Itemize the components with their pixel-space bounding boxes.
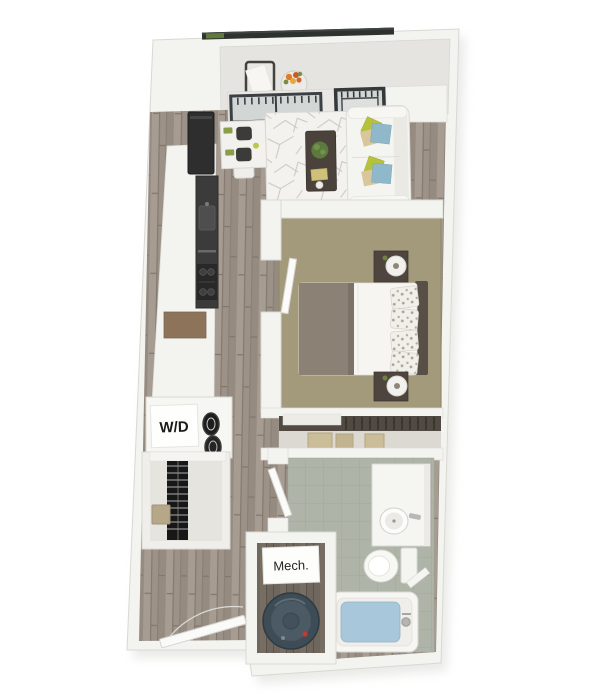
- blanket-edge: [348, 283, 354, 375]
- basket: [365, 434, 384, 448]
- leaf: [284, 80, 289, 85]
- door-muntins: [342, 91, 378, 98]
- leaf: [298, 72, 302, 76]
- bed-pillow: [390, 350, 419, 374]
- mech-label: Mech.: [273, 557, 309, 573]
- burner: [200, 289, 207, 296]
- toilet-seat: [369, 556, 390, 576]
- dish: [316, 182, 323, 189]
- greenery: [383, 256, 388, 261]
- water-heater-cap: [283, 613, 299, 629]
- railing-planter-green: [206, 33, 224, 38]
- flower: [296, 77, 301, 82]
- wd-label: W/D: [159, 418, 189, 436]
- burner: [200, 269, 207, 276]
- refrigerator-handle: [190, 116, 212, 119]
- closet-shelf: [283, 414, 341, 425]
- burner: [208, 269, 215, 276]
- bed-pillow: [390, 330, 419, 352]
- flower: [290, 78, 296, 84]
- burner: [208, 289, 215, 296]
- bed-blanket: [299, 283, 352, 375]
- basket: [308, 433, 332, 448]
- lamp-finial: [394, 383, 400, 389]
- coat-closet: [142, 452, 230, 549]
- greenery: [383, 376, 388, 381]
- oven-handle: [198, 250, 216, 253]
- placemat-green: [223, 127, 232, 133]
- coffee-table: [305, 131, 336, 192]
- bed-pillow: [390, 308, 419, 330]
- mech-closet: Mech.: [246, 532, 336, 664]
- storage-box: [152, 505, 170, 524]
- washer-door: [203, 413, 219, 435]
- sofa-arm: [348, 106, 407, 118]
- heater-valve-red: [302, 631, 307, 636]
- bedroom-west-wall: [261, 200, 281, 260]
- kitchen-sink: [199, 206, 215, 230]
- bathroom-west-wall: [268, 448, 288, 464]
- dining-chair: [235, 147, 253, 163]
- bedroom: [261, 200, 443, 414]
- book: [311, 168, 328, 180]
- placemat-green: [225, 149, 234, 155]
- pillow-blue: [372, 163, 393, 184]
- cabinet-brown: [164, 312, 206, 338]
- sink-drain: [392, 519, 395, 522]
- bath-water: [341, 602, 400, 642]
- dining-chair: [235, 126, 253, 142]
- basket: [336, 434, 353, 448]
- tub-faucet: [402, 618, 410, 626]
- sink-faucet: [205, 202, 209, 206]
- vanity: [372, 464, 430, 546]
- bedroom-north-wall: [261, 200, 443, 218]
- refrigerator: [188, 112, 214, 174]
- floorplan-image: W/D: [0, 0, 610, 698]
- bedroom-west-wall: [261, 312, 281, 412]
- pillow-blue: [370, 123, 391, 144]
- lamp-finial: [393, 263, 399, 269]
- heater-pipe: [281, 636, 285, 640]
- closet-shelf: [150, 452, 226, 461]
- floorplan-svg: W/D: [0, 0, 610, 698]
- washer-dryer: W/D: [146, 397, 232, 458]
- sofa: [346, 105, 411, 208]
- bed-pillow: [390, 285, 419, 309]
- vanity-backsplash: [424, 464, 430, 546]
